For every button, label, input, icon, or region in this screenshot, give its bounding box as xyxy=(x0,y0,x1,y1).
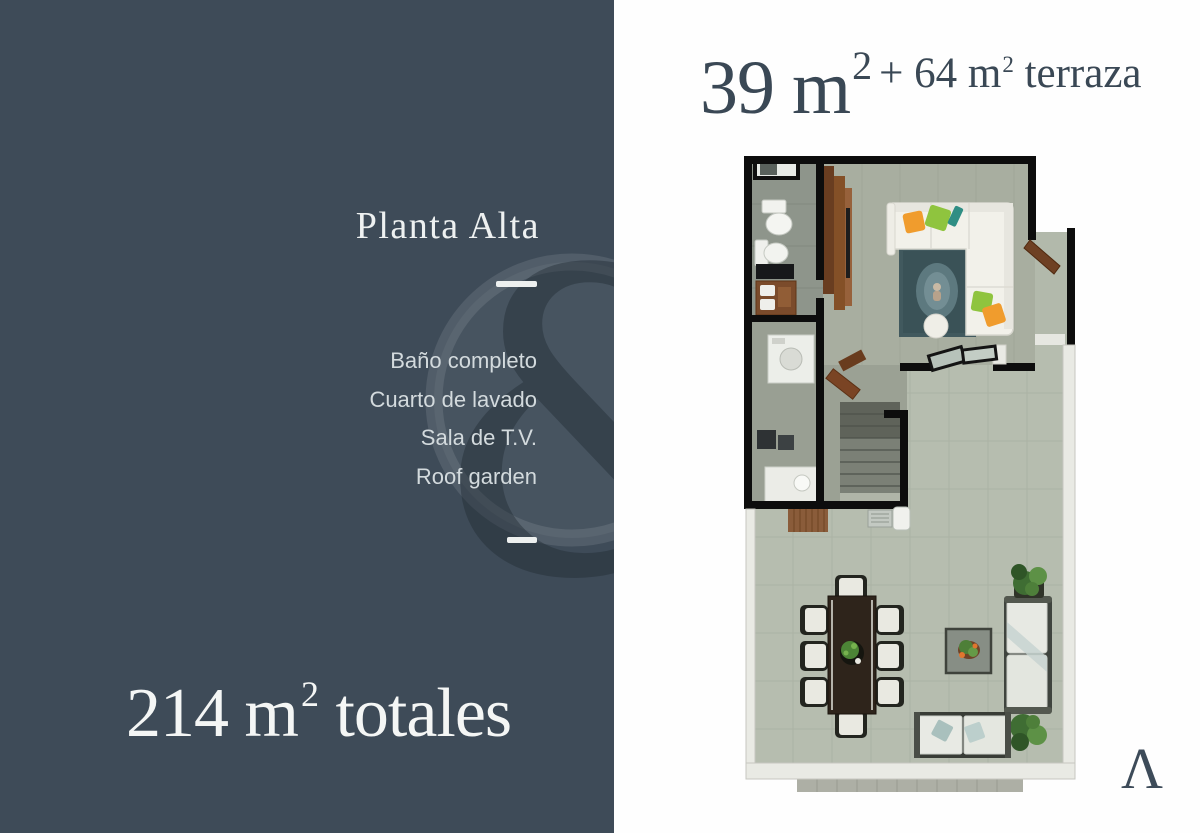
total-area-lead: 214 m xyxy=(126,675,298,752)
media-wall-icon xyxy=(823,166,834,294)
feature-roof-garden: Roof garden xyxy=(369,458,537,497)
divider-dash-top xyxy=(496,281,537,287)
pouf-icon xyxy=(924,314,948,338)
divider-dash-bottom xyxy=(507,537,537,543)
floorplan-panel: 39 m2+ 64 m2 terraza xyxy=(614,0,1200,833)
feature-tv-room: Sala de T.V. xyxy=(369,419,537,458)
total-area-sup: 2 xyxy=(301,674,319,714)
area-title-main: 39 m2 xyxy=(700,46,871,130)
brochure-page: & Planta Alta Baño completo Cuarto de la… xyxy=(0,0,1200,833)
total-area-label: 214 m2 totales xyxy=(126,676,511,749)
pillow-icon xyxy=(902,210,926,234)
feature-laundry: Cuarto de lavado xyxy=(369,381,537,420)
floorplan-drawing xyxy=(742,152,1078,796)
brand-logo: Λ xyxy=(1121,740,1163,798)
area-title-terrace: + 64 m2 terraza xyxy=(879,50,1141,97)
feature-list: Baño completo Cuarto de lavado Sala de T… xyxy=(369,342,537,496)
coffee-table xyxy=(946,629,991,673)
page-title: Planta Alta xyxy=(356,207,540,245)
vent-unit xyxy=(868,507,910,530)
total-area-tail: totales xyxy=(319,675,511,752)
glass-door-icon xyxy=(962,346,996,363)
tv-icon xyxy=(846,208,850,278)
area-title: 39 m2+ 64 m2 terraza xyxy=(700,46,1142,126)
toilet-icon xyxy=(762,200,786,213)
outdoor-sofa-bottom xyxy=(914,712,1011,758)
wood-deck xyxy=(788,509,828,532)
centerpiece-plant-icon xyxy=(841,641,859,659)
left-info-panel: & Planta Alta Baño completo Cuarto de la… xyxy=(0,0,614,833)
feature-bathroom: Baño completo xyxy=(369,342,537,381)
